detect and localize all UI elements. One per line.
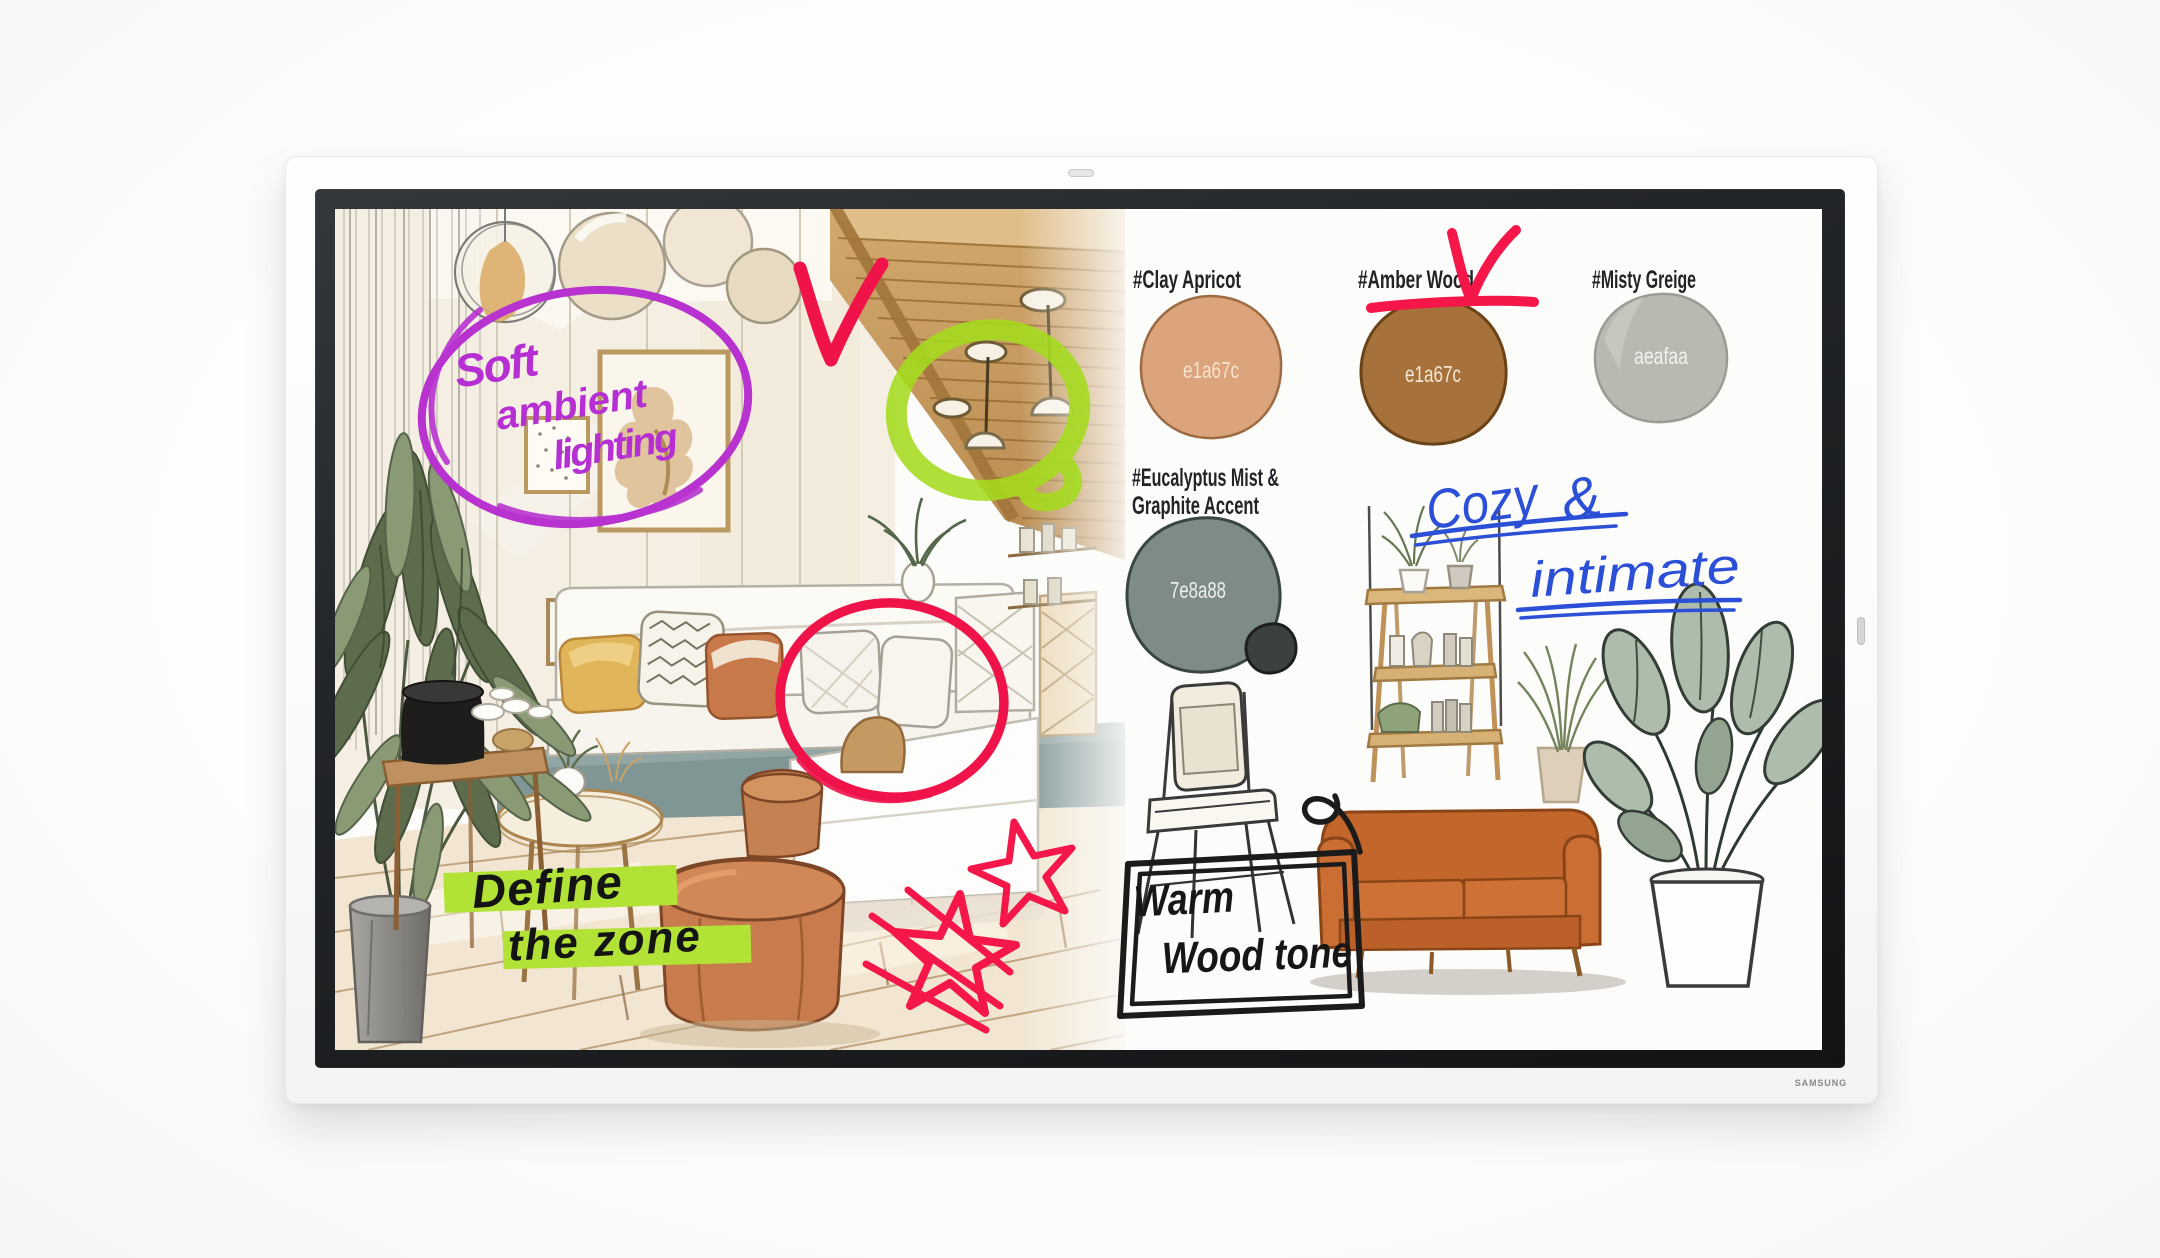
svg-text:Graphite Accent: Graphite Accent [1132, 492, 1259, 520]
svg-text:e1a67c: e1a67c [1183, 357, 1239, 383]
svg-text:the zone: the zone [507, 912, 701, 971]
svg-text:#Clay Apricot: #Clay Apricot [1133, 266, 1241, 294]
svg-text:#Eucalyptus Mist &: #Eucalyptus Mist & [1132, 464, 1279, 492]
svg-text:aeafaa: aeafaa [1634, 343, 1688, 369]
svg-text:e1a67c: e1a67c [1405, 361, 1461, 387]
svg-text:Wood tone: Wood tone [1161, 928, 1353, 984]
svg-text:#Misty Greige: #Misty Greige [1592, 266, 1696, 294]
svg-text:Warm: Warm [1133, 872, 1235, 926]
svg-text:7e8a88: 7e8a88 [1170, 577, 1226, 603]
svg-text:Define: Define [470, 855, 623, 918]
